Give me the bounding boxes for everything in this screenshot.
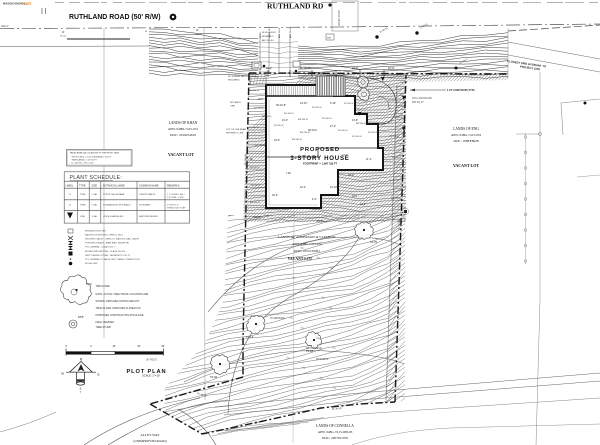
svg-text:LINE: LINE [230, 106, 235, 108]
svg-text:W: W [61, 371, 64, 375]
svg-text:22'-4": 22'-4" [300, 186, 306, 189]
svg-text:3-STORY HOUSE: 3-STORY HOUSE [290, 155, 349, 162]
svg-text:BW 246.10: BW 246.10 [300, 132, 311, 134]
svg-text:TREE STUMP: TREE STUMP [96, 326, 112, 329]
svg-text:BW 246.10: BW 246.10 [391, 198, 402, 200]
svg-text:DOC: 2019254619: DOC: 2019254619 [170, 133, 196, 137]
svg-text:15'-8": 15'-8" [360, 203, 366, 206]
svg-text:RUTHLAND ROAD (50' R/W): RUTHLAND ROAD (50' R/W) [69, 14, 161, 21]
svg-text:245.50 FG: 245.50 FG [388, 100, 398, 102]
svg-text:16+50: 16+50 [60, 36, 67, 38]
svg-text:9'-10": 9'-10" [330, 102, 336, 105]
svg-text:26.0': 26.0' [258, 98, 264, 101]
svg-text:27'-0": 27'-0" [330, 125, 336, 128]
svg-text:BW 246.10: BW 246.10 [292, 139, 303, 141]
svg-text:40': 40' [161, 345, 165, 348]
svg-text:VINE: VINE [80, 216, 85, 218]
svg-text:29'-0": 29'-0" [352, 67, 358, 70]
svg-text:TRIM & SIZE: TRIM & SIZE [96, 285, 110, 288]
svg-text:APN: 048D-7415-031: APN: 048D-7415-031 [168, 127, 199, 131]
svg-text:DOC: 2007051076: DOC: 2007051076 [322, 436, 348, 440]
svg-text:245.50 FG: 245.50 FG [274, 125, 284, 127]
svg-text:245.50 FG: 245.50 FG [249, 127, 259, 129]
svg-text:100.00': 100.00' [253, 216, 261, 219]
svg-text:E: E [97, 373, 99, 377]
svg-text:245.50 FG: 245.50 FG [338, 130, 348, 132]
svg-text:BW 246.10: BW 246.10 [356, 123, 367, 125]
svg-text:DOC: 108EE8628: DOC: 108EE8628 [454, 139, 479, 143]
svg-text:NOTE: ACTUAL TREE TRUNK LOC: NOTE: ACTUAL TREE TRUNK LOCATIONS ARE [96, 293, 149, 296]
svg-text:(IN FEET): (IN FEET) [146, 359, 157, 362]
svg-text:24'-10": 24'-10" [300, 102, 308, 105]
svg-text:RUTHLAND RD: RUTHLAND RD [267, 2, 324, 11]
svg-text:18'-0": 18'-0" [272, 194, 278, 197]
svg-text:REMARKS: REMARKS [167, 184, 180, 187]
svg-text:BOTANICAL NAME: BOTANICAL NAME [103, 184, 125, 187]
svg-text:DIRT: DIRT [24, 2, 31, 6]
svg-text:LANDS OF ENG: LANDS OF ENG [453, 127, 479, 131]
svg-text:SPIKED TUB / 9 GBP: SPIKED TUB / 9 GBP [167, 208, 186, 210]
svg-text:COMMON NAME: COMMON NAME [139, 184, 159, 187]
svg-text:L 26': L 26' [286, 172, 292, 175]
svg-text:48'-02: 48'-02 [260, 31, 262, 38]
svg-text:245.50 FG: 245.50 FG [251, 185, 261, 187]
svg-text:REQUIRED: REQUIRED [228, 80, 240, 82]
svg-text:PL 100.00': PL 100.00' [244, 153, 247, 165]
svg-text:PROPERTY LINE: PROPERTY LINE [226, 133, 244, 135]
svg-text:16' MEDICINE: 16' MEDICINE [270, 318, 285, 320]
svg-text:PL 100.66': PL 100.66' [300, 67, 312, 70]
svg-text:BW 246.10: BW 246.10 [255, 145, 266, 147]
svg-text:SHOWN. DRIPLINES SHOWN ARE: SHOWN. DRIPLINES SHOWN ARE NOT [96, 300, 141, 303]
svg-text:APN: 048G-7415-008-03: APN: 048G-7415-008-03 [318, 430, 353, 434]
svg-text:11'-2": 11'-2" [366, 158, 372, 161]
svg-text:1 G EGG 5' 3": 1 G EGG 5' 3" [167, 205, 179, 207]
svg-text:26'-8": 26'-8" [317, 220, 323, 223]
svg-text:SIZE: SIZE [92, 184, 98, 187]
svg-text:APN: 048G-7415-032: APN: 048G-7415-032 [292, 242, 323, 246]
svg-text:LANDS OF CONNELLA: LANDS OF CONNELLA [316, 424, 354, 428]
svg-text:10'-8": 10'-8" [352, 119, 358, 122]
svg-text:LABEL: LABEL [66, 184, 74, 187]
svg-text:TREE: TREE [80, 194, 86, 196]
svg-text:245.50 FG: 245.50 FG [344, 103, 354, 105]
svg-text:25'-0": 25'-0" [348, 174, 354, 177]
svg-text:SPEED 25 MP: SPEED 25 MP [338, 10, 341, 26]
svg-text:NO STREET IMPVT: NO STREET IMPVT [228, 76, 248, 78]
svg-text:PROPOSED CONSTRUCTION SHOULD: PROPOSED CONSTRUCTION SHOULD BE [96, 314, 144, 317]
svg-text:245.50 FG: 245.50 FG [262, 116, 272, 118]
svg-text:TJ: TJ [69, 205, 71, 207]
svg-text:FIELD VERIFIED.: FIELD VERIFIED. [96, 321, 115, 324]
svg-text:SD 18-6: SD 18-6 [308, 129, 317, 132]
svg-text:TREE: TREE [80, 205, 86, 207]
svg-text:S: S [79, 387, 81, 391]
svg-text:245.50 FG: 245.50 FG [392, 157, 402, 159]
svg-text:% = 347/706 = 49% = 50%: % = 347/706 = 49% = 50% [71, 163, 94, 165]
svg-text:25'-0": 25'-0" [266, 67, 272, 70]
svg-text:BW 246.10: BW 246.10 [249, 90, 260, 92]
svg-text:245.50 FG: 245.50 FG [389, 180, 399, 182]
svg-text:245.50 FG: 245.50 FG [312, 107, 322, 109]
svg-text:BW 246.10: BW 246.10 [298, 119, 309, 121]
svg-text:DOC: 2015129281: DOC: 2015129281 [294, 249, 320, 253]
svg-text:VACANT LOT: VACANT LOT [168, 152, 194, 157]
svg-text:TRUE IN SIZE. DRIPLINES IN A: TRUE IN SIZE. DRIPLINES IN AREAS OF [96, 307, 142, 310]
svg-text:245.50 FG: 245.50 FG [368, 132, 378, 134]
svg-text:(24' CYPRESS): (24' CYPRESS) [306, 348, 322, 350]
svg-text:18.4': 18.4' [352, 195, 358, 198]
svg-text:(UNIMPROVED ROAD): (UNIMPROVED ROAD) [133, 439, 166, 443]
svg-text:20': 20' [137, 345, 141, 348]
svg-text:245.50 FG: 245.50 FG [254, 108, 264, 110]
svg-text:16'-10": 16'-10" [330, 186, 338, 189]
svg-text:48'-02 / 245.62: 48'-02 / 245.62 [262, 32, 277, 34]
svg-text:VACANT LOT: VACANT LOT [288, 257, 313, 261]
svg-text:TYPE: TYPE [79, 184, 86, 187]
svg-text:SD 40'-8": SD 40'-8" [276, 104, 286, 107]
svg-text:8/5'8": 8/5'8" [78, 316, 84, 319]
svg-text:245.50 FG: 245.50 FG [284, 113, 294, 115]
svg-text:LANDS OF KHAN: LANDS OF KHAN [169, 121, 198, 125]
svg-text:585 SQ FT: 585 SQ FT [412, 101, 424, 104]
svg-text:245.50 FG: 245.50 FG [352, 136, 362, 138]
svg-text:PLOT PLAN: PLOT PLAN [127, 369, 167, 375]
svg-text:16'-0": 16'-0" [282, 119, 288, 122]
svg-text:VACANT LOT: VACANT LOT [453, 163, 479, 168]
svg-text:245.50 FG: 245.50 FG [393, 117, 403, 119]
svg-text:PROPOSED: PROPOSED [300, 147, 340, 153]
svg-text:21'-0": 21'-0" [342, 154, 348, 157]
svg-text:ALLEY WAY: ALLEY WAY [140, 433, 160, 437]
svg-text:30% LANDSCAPE: 30% LANDSCAPE [412, 97, 432, 100]
svg-text:16.74': 16.74' [388, 67, 395, 70]
svg-text:245.50 FG: 245.50 FG [322, 118, 332, 120]
svg-text:245.50 FG: 245.50 FG [250, 167, 260, 169]
svg-text:16+00: 16+00 [196, 34, 203, 36]
svg-text:MASON KNOWS: MASON KNOWS [3, 1, 25, 5]
svg-text:BW 246.10: BW 246.10 [389, 136, 400, 138]
svg-text:PL 100.00': PL 100.00' [398, 218, 401, 230]
svg-text:10': 10' [112, 345, 116, 348]
svg-text:LANDS OF ANDERSON & CLEMENT: LANDS OF ANDERSON & CLEMENT [278, 235, 337, 239]
svg-text:9'-2": 9'-2" [312, 198, 317, 201]
svg-text:APN: 048G-7415-033: APN: 048G-7415-033 [451, 133, 482, 137]
svg-text:19'-6": 19'-6" [274, 139, 280, 142]
svg-text:BW 246.10: BW 246.10 [250, 202, 261, 204]
svg-text:WM: WM [327, 38, 331, 40]
svg-text:SDWK 48'-2: SDWK 48'-2 [262, 36, 274, 38]
